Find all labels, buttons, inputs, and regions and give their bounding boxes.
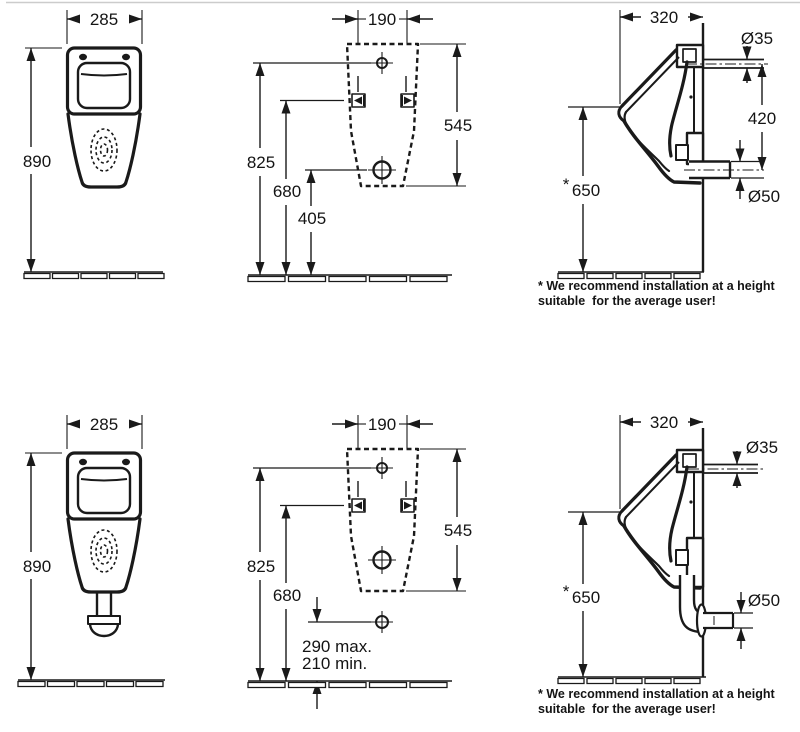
rim-edge: [81, 74, 127, 76]
inlet-crosshair: [371, 52, 393, 74]
mounting-hole-left: [79, 459, 87, 465]
side-view-bottom: 320: [538, 413, 780, 716]
dim-height-890: 890: [23, 453, 62, 680]
outlet-box: [687, 133, 703, 164]
dim-label-fixing-height: 680: [273, 182, 301, 201]
dim-fixing-width-190: 190: [332, 415, 433, 449]
dim-label-outlet-min: 210 min.: [302, 654, 367, 673]
dim-label-rim-height: 650: [572, 588, 600, 607]
dim-outlet-diameter: Ø50: [740, 140, 780, 206]
floor-hatch: [558, 272, 704, 279]
dim-wall-outlet-height: 290 max. 210 min.: [302, 597, 372, 709]
dim-label-outline-height: 545: [444, 116, 472, 135]
mounting-hole-left: [79, 54, 87, 60]
siphon-outlet: [88, 592, 120, 636]
dim-drain-height-405: 405: [298, 170, 326, 275]
dim-inlet-diameter: Ø35: [737, 438, 778, 488]
fixing-bracket-left: [352, 94, 365, 107]
dim-rim-height-650: * 650: [563, 107, 621, 272]
floor-hatch: [18, 680, 165, 687]
drain-cover: [91, 530, 117, 572]
urinal-side-profile: [619, 450, 703, 588]
rim-edge: [81, 479, 127, 481]
dim-label-width: 285: [90, 415, 118, 434]
dim-label-rim-height: 650: [572, 181, 600, 200]
dim-fixing-height-680: 680: [273, 101, 301, 276]
dim-height-890: 890: [23, 48, 62, 272]
dim-label-fixing-width: 190: [368, 415, 396, 434]
back-view-bottom: 190: [247, 415, 472, 709]
siphon-trap: [680, 575, 733, 637]
dim-label-depth: 320: [650, 8, 678, 27]
dim-inlet-diameter: Ø35: [741, 29, 773, 83]
dim-label-fixing-width: 190: [368, 10, 396, 29]
body-taper: [68, 114, 140, 187]
mounting-hole-right: [122, 459, 130, 465]
floor-hatch: [248, 681, 452, 688]
dim-width-285: 285: [67, 10, 142, 44]
floor-hatch: [24, 272, 164, 279]
drain-crosshair: [368, 156, 396, 184]
dim-label-inlet-height: 825: [247, 153, 275, 172]
outlet-pipe: [684, 162, 764, 179]
dim-inlet-height-825: 825: [247, 63, 275, 275]
dim-inlet-height-825: 825: [247, 468, 275, 681]
installation-note-line2: suitable for the average user!: [538, 702, 716, 716]
drain-crosshair: [368, 546, 396, 574]
dim-outline-height-545: 545: [406, 449, 472, 591]
fixing-bracket-right: [401, 94, 414, 107]
dim-label-connection-spacing: 420: [748, 109, 776, 128]
installation-note-line2: suitable for the average user!: [538, 294, 716, 308]
dim-label-fixing-height: 680: [273, 586, 301, 605]
dim-connection-spacing-420: 420: [748, 64, 776, 170]
dim-outlet-diameter: Ø50: [734, 591, 780, 649]
back-view-top: 190 825: [247, 10, 472, 282]
dim-label-outline-height: 545: [444, 521, 472, 540]
dim-outline-height-545: 545: [406, 44, 472, 186]
dim-fixing-width-190: 190: [332, 10, 433, 44]
dim-label-height: 890: [23, 557, 51, 576]
footnote-asterisk: *: [563, 582, 570, 601]
drawing-canvas: 285 890: [0, 0, 800, 732]
basin-rim: [78, 63, 130, 108]
urinal-front-outline: [68, 48, 141, 187]
dim-label-drain-height: 405: [298, 209, 326, 228]
wall-outlet-crosshair: [371, 611, 393, 633]
dim-label-inlet-diameter: Ø35: [746, 438, 778, 457]
side-view-top: 320: [538, 8, 780, 308]
dim-label-outlet-diameter: Ø50: [748, 187, 780, 206]
dim-label-height: 890: [23, 152, 51, 171]
footnote-asterisk: *: [563, 175, 570, 194]
technical-drawing-sheet: 285 890: [0, 0, 800, 732]
floor-hatch: [248, 275, 452, 282]
front-view-bottom: 285 890: [18, 415, 165, 687]
dim-fixing-height-680: 680: [273, 506, 301, 682]
dim-width-285: 285: [67, 415, 142, 449]
dim-label-outlet-diameter: Ø50: [748, 591, 780, 610]
drain-cover: [91, 129, 117, 171]
floor-hatch: [558, 677, 706, 684]
urinal-front-outline: [68, 453, 141, 636]
basin-rim: [78, 468, 130, 513]
inlet-crosshair: [371, 457, 393, 479]
dim-rim-height-650: * 650: [563, 512, 621, 677]
dim-label-inlet-diameter: Ø35: [741, 29, 773, 48]
mounting-hole-right: [122, 54, 130, 60]
fixing-bracket-right: [401, 499, 414, 512]
installation-note-line1: * We recommend installation at a height: [538, 687, 775, 701]
fixing-bracket-left: [352, 499, 365, 512]
dim-label-inlet-height: 825: [247, 557, 275, 576]
front-view-top: 285 890: [23, 10, 164, 279]
installation-note-line1: * We recommend installation at a height: [538, 279, 775, 293]
dim-label-width: 285: [90, 10, 118, 29]
dim-label-depth: 320: [650, 413, 678, 432]
